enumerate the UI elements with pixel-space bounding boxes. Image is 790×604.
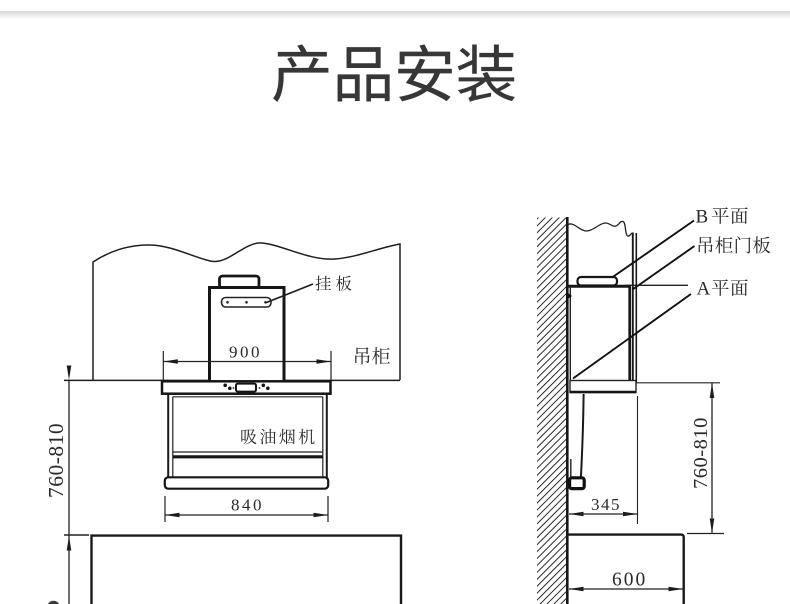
svg-text:B: B bbox=[696, 207, 709, 228]
svg-text:840: 840 bbox=[231, 496, 264, 515]
svg-text:760-810: 760-810 bbox=[44, 423, 68, 498]
svg-text:345: 345 bbox=[591, 495, 621, 514]
svg-text:760-810: 760-810 bbox=[690, 417, 712, 489]
svg-text:600: 600 bbox=[612, 570, 647, 591]
svg-text:900: 900 bbox=[229, 343, 262, 362]
svg-text:A: A bbox=[697, 279, 711, 300]
